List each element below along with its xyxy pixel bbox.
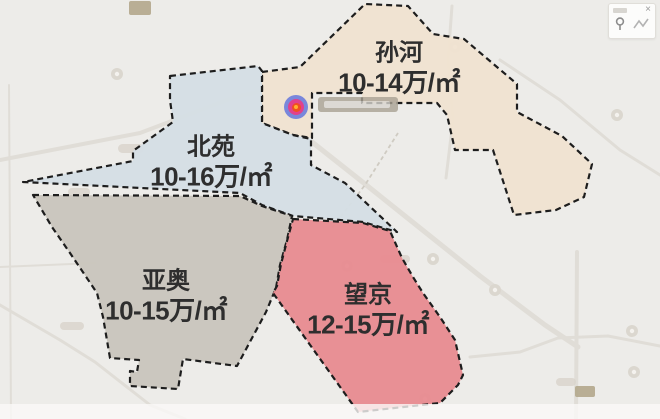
polyline-icon[interactable]	[633, 18, 649, 30]
map-place-label-text-bar	[324, 101, 390, 108]
pin-icon[interactable]	[615, 17, 625, 31]
marker-center-dot	[294, 105, 298, 109]
road-name-pill	[60, 322, 84, 330]
poi-icon-dot	[630, 329, 634, 333]
region-name: 孙河	[338, 40, 460, 68]
region-label-beiyuan: 北苑10-16万/㎡	[150, 134, 272, 193]
close-icon[interactable]: ×	[645, 6, 651, 14]
panel-title-bar	[613, 8, 627, 13]
region-name: 亚奥	[105, 268, 227, 296]
region-name: 望京	[307, 282, 429, 310]
background-road	[470, 336, 660, 357]
map-canvas[interactable]: × 孙河10-14万/㎡北苑10-16万/㎡亚奥10-15万/㎡望京12-15万…	[0, 0, 660, 419]
road-name-pill	[556, 378, 576, 386]
map-badge	[129, 1, 151, 15]
map-svg	[0, 0, 660, 419]
region-price: 12-15万/㎡	[307, 310, 429, 341]
region-label-sunhe: 孙河10-14万/㎡	[338, 40, 460, 99]
background-road	[9, 85, 11, 419]
map-tools-panel: ×	[608, 3, 656, 39]
location-target-marker[interactable]	[283, 94, 309, 120]
poi-icon-dot	[431, 257, 435, 261]
region-price: 10-15万/㎡	[105, 296, 227, 327]
poi-icon-dot	[493, 288, 497, 292]
poi-icon-dot	[615, 113, 619, 117]
map-place-label	[318, 97, 398, 112]
poi-icon-dot	[632, 370, 636, 374]
region-label-wangjing: 望京12-15万/㎡	[307, 282, 429, 341]
region-label-yaao: 亚奥10-15万/㎡	[105, 268, 227, 327]
map-badge	[575, 386, 595, 397]
region-name: 北苑	[150, 134, 272, 162]
region-price: 10-16万/㎡	[150, 162, 272, 193]
region-price: 10-14万/㎡	[338, 68, 460, 99]
poi-icon-dot	[115, 72, 119, 76]
map-bottom-strip	[0, 404, 660, 419]
